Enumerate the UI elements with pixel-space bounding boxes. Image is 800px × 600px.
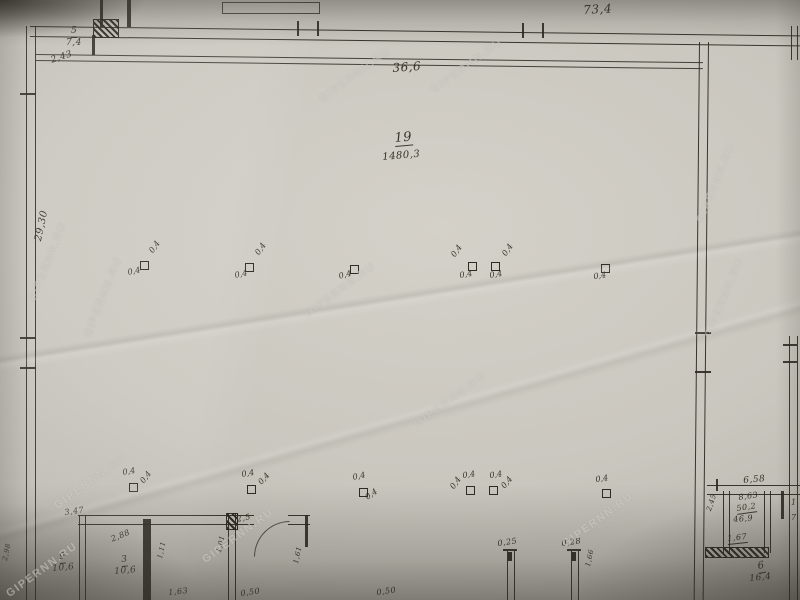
dimension-label: 1,63	[168, 587, 189, 597]
wall-br-v3	[781, 491, 784, 519]
column-size-label: 0,4	[459, 270, 473, 280]
wall-right-inner	[694, 42, 709, 600]
wall-bc-cap1	[503, 549, 517, 551]
dimension-label: 7,4	[66, 39, 82, 48]
dimension-label: 36,6	[392, 60, 421, 74]
tick-right-w2	[695, 371, 711, 373]
dimension-label: 16,4	[749, 573, 772, 584]
wall-bl-v2	[143, 519, 151, 600]
dimension-label: 19	[394, 130, 413, 146]
tick-right-w1	[695, 332, 711, 334]
dimension-label: 10,6	[52, 563, 75, 574]
wall-stub-top-b	[127, 0, 131, 27]
column-size-label: 0,4	[449, 476, 463, 491]
wall-left-outer	[26, 26, 36, 600]
column-size-label: 0,4	[257, 472, 271, 487]
dimension-label: 46,9	[733, 514, 753, 524]
column-size-label: 0,4	[595, 474, 609, 484]
dimension-label: 2,88	[110, 529, 131, 544]
column-symbol	[129, 483, 138, 492]
floorplan-photo: 73,436,657,42,43191480,329,303,472,88910…	[0, 0, 800, 600]
column-size-label: 0,4	[489, 270, 503, 280]
column-symbol	[247, 485, 256, 494]
column-size-label: 0,4	[241, 469, 255, 479]
wall-bc-cap2	[567, 549, 581, 551]
dimension-label: 1,01	[216, 535, 227, 554]
wall-bc-fill2	[572, 552, 576, 561]
wall-bl-v4	[305, 515, 308, 547]
column-size-label: 0,4	[501, 243, 515, 258]
dimension-label: 29,30	[34, 210, 50, 243]
column-symbol	[140, 261, 149, 270]
wall-right-outer	[789, 336, 798, 600]
tick-top-4	[542, 23, 544, 38]
wall-top-outer	[30, 26, 800, 46]
tick-rightouter-w2	[783, 361, 797, 363]
column-size-label: 0,4	[234, 269, 248, 279]
column-symbol	[466, 486, 475, 495]
dimension-label: 5	[71, 27, 77, 38]
column-size-label: 0,4	[352, 471, 366, 481]
dimension-label: 8,63	[738, 491, 759, 502]
column-size-label: 0,4	[489, 470, 503, 480]
tick-left-1	[20, 93, 36, 95]
dimension-label: 2,45	[706, 493, 718, 512]
door-arc	[254, 521, 290, 557]
column-size-label: 0,4	[148, 240, 162, 255]
wall-br-hatch	[705, 547, 769, 558]
dimension-label: 1480,3	[382, 150, 421, 163]
wall-right-outer-top	[791, 26, 798, 60]
column-size-label: 0,4	[122, 467, 136, 477]
column-size-label: 0,4	[462, 470, 476, 480]
wall-bc-fill1	[508, 552, 512, 561]
column-size-label: 0,4	[593, 271, 607, 281]
tick-top-3	[522, 23, 524, 38]
tick-br	[716, 479, 718, 491]
tick-top-1	[297, 21, 299, 36]
column-size-label: 0,4	[254, 242, 268, 257]
column-size-label: 0,4	[338, 270, 352, 281]
dimension-label: 0,50	[240, 587, 261, 598]
wall-top-inner	[36, 54, 703, 69]
tick-rightouter-w1	[783, 344, 797, 346]
dimension-label: 1,11	[157, 541, 168, 560]
tick-left-w2	[20, 367, 36, 369]
tick-left-w1	[20, 337, 36, 339]
dimension-label: 2,98	[2, 543, 13, 562]
dimension-label: 1	[791, 499, 797, 507]
wall-box-top	[222, 2, 320, 14]
column-symbol	[602, 489, 611, 498]
wall-topleft-room	[92, 35, 95, 55]
dimension-label: 7	[791, 514, 797, 522]
dimension-label: 2,43	[50, 50, 74, 65]
column-size-label: 0,4	[450, 244, 464, 259]
dimension-label: 10,6	[114, 566, 137, 577]
wall-hatch-top-left	[93, 19, 119, 38]
dimension-label: 73,4	[583, 2, 612, 15]
dimension-label: 0,50	[376, 586, 397, 597]
dimension-label: 0,25	[497, 537, 518, 548]
column-size-label: 0,4	[139, 470, 153, 485]
plan-drawing: 73,436,657,42,43191480,329,303,472,88910…	[0, 0, 800, 600]
dimension-label: 1,66	[585, 549, 596, 568]
tick-top-2	[317, 21, 319, 36]
dimension-label: 1,67	[727, 533, 748, 545]
column-symbol	[489, 486, 498, 495]
dimension-label: 0,28	[561, 537, 582, 548]
dimension-label: 6,58	[743, 475, 766, 486]
wall-bl-v1	[79, 515, 86, 600]
dimension-label: 1,61	[293, 546, 304, 565]
wall-br-v2	[764, 491, 771, 553]
column-size-label: 0,4	[127, 266, 141, 276]
